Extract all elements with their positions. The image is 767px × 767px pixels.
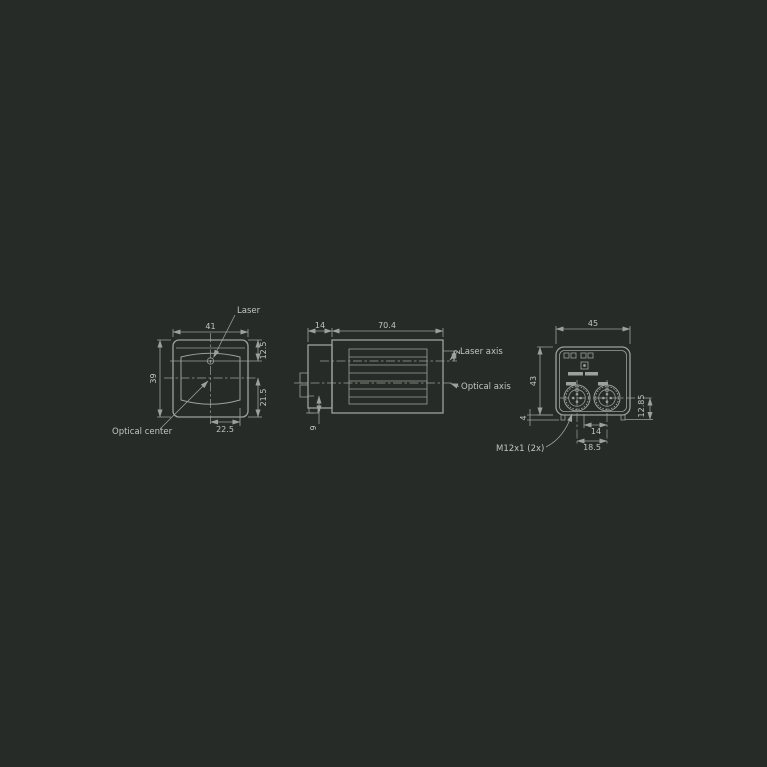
laser-label: Laser <box>237 306 261 316</box>
led-indicator-4 <box>588 353 593 358</box>
foot-right <box>621 415 625 420</box>
laser-aperture-dot <box>210 360 212 362</box>
side-view: 14 70.4 2 9 Laser axis Optical axis <box>294 321 511 431</box>
dim-front-laser-offset: 12.5 <box>259 342 268 360</box>
dim-front-width: 41 <box>205 322 215 331</box>
dim-front-height: 39 <box>149 373 158 383</box>
fin-lines <box>349 357 427 397</box>
optical-center-leader <box>160 381 208 429</box>
optical-axis-leader <box>451 384 460 387</box>
side-left-knob-top <box>300 373 308 383</box>
dim-side-body-length: 70.4 <box>378 321 396 330</box>
dim-front-optical-offset: 21.5 <box>259 389 268 407</box>
front-view: 41 39 12.5 21.5 22.5 Laser Optical cente… <box>112 306 268 437</box>
side-left-knob-bottom <box>300 385 308 397</box>
rear-view: 45 43 4 14 18.5 12.85 M12x1 (2x) <box>496 319 653 454</box>
dim-rear-width: 45 <box>588 319 598 328</box>
technical-drawing: 41 39 12.5 21.5 22.5 Laser Optical cente… <box>0 0 767 767</box>
connector-thread-label: M12x1 (2x) <box>496 444 544 454</box>
led-indicator-2 <box>571 353 576 358</box>
dim-rear-tab: 4 <box>519 415 528 420</box>
led-indicator-1 <box>564 353 569 358</box>
side-foot <box>309 408 318 413</box>
optical-axis-label: Optical axis <box>461 382 511 392</box>
led-indicator-3 <box>581 353 586 358</box>
side-front-section <box>308 345 332 408</box>
teach-button-dot <box>583 364 586 367</box>
dim-side-front-section: 14 <box>315 321 325 330</box>
dim-rear-connector-gap: 14 <box>591 427 601 436</box>
label-strip-right <box>585 372 598 376</box>
foot-left <box>561 415 565 420</box>
label-strip-left <box>568 372 583 376</box>
laser-leader <box>214 315 236 358</box>
dim-rear-connector-spacing: 18.5 <box>583 443 601 452</box>
laser-axis-label: Laser axis <box>460 347 503 357</box>
drawing-canvas: 41 39 12.5 21.5 22.5 Laser Optical cente… <box>0 0 767 767</box>
dim-front-horizontal-offset: 22.5 <box>216 425 234 434</box>
dim-rear-height: 43 <box>529 376 538 386</box>
optical-center-label: Optical center <box>112 427 173 437</box>
connector-thread-leader <box>546 414 572 447</box>
dim-rear-connector-height: 12.85 <box>637 395 646 418</box>
dim-side-bottom-offset: 9 <box>309 425 318 430</box>
